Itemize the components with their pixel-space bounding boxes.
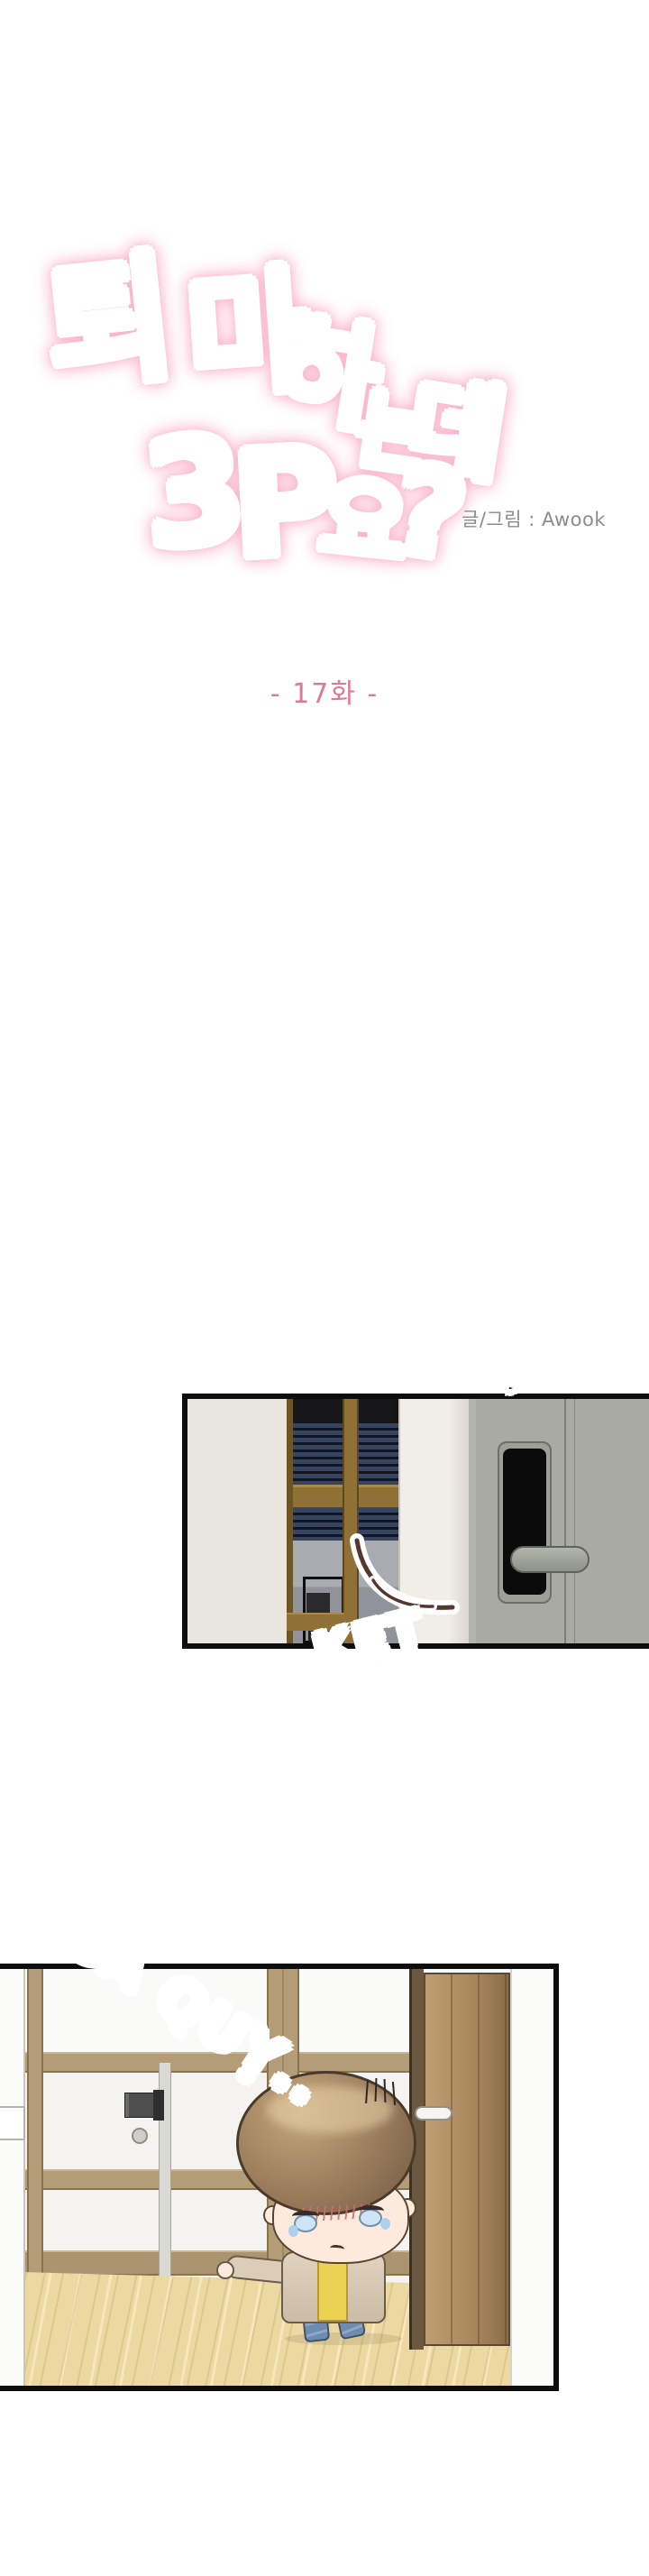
episode-number: - 17화 - [0, 671, 649, 711]
door-seam [564, 1399, 566, 1643]
right-wall [510, 1969, 559, 2386]
door-seam [574, 1399, 575, 1643]
lock-strike-plate [153, 2090, 164, 2121]
grey-door [469, 1399, 649, 1643]
shelf-box [306, 1593, 330, 1613]
wall-box [0, 2106, 25, 2140]
tear-drop [288, 2225, 298, 2237]
tear-drop [380, 2218, 390, 2230]
webtoon-page: { "title": { "chars": ["퇴", "마", "하", "는… [0, 0, 649, 2576]
character-shirt [317, 2255, 348, 2322]
title-char: 퇴 [40, 248, 179, 398]
stress-line [384, 2079, 387, 2102]
left-pillar [0, 1969, 25, 2386]
character-eyelid [292, 2211, 319, 2222]
sfx-cach: CẠCH [459, 1332, 599, 1396]
frame-post [27, 1969, 43, 2276]
author-credit: 글/그림 : Awook [462, 505, 606, 532]
open-brown-door [424, 1973, 510, 2346]
door-knob [132, 2128, 148, 2144]
window-frame-edge [287, 1399, 293, 1643]
series-title-logo: 퇴 마 하 는 데 3 P 요 ? [0, 0, 649, 649]
door-handle-lever [510, 1546, 590, 1573]
character-hand [216, 2261, 234, 2279]
open-door-handle [415, 2106, 452, 2121]
character-eyelid [357, 2205, 384, 2216]
